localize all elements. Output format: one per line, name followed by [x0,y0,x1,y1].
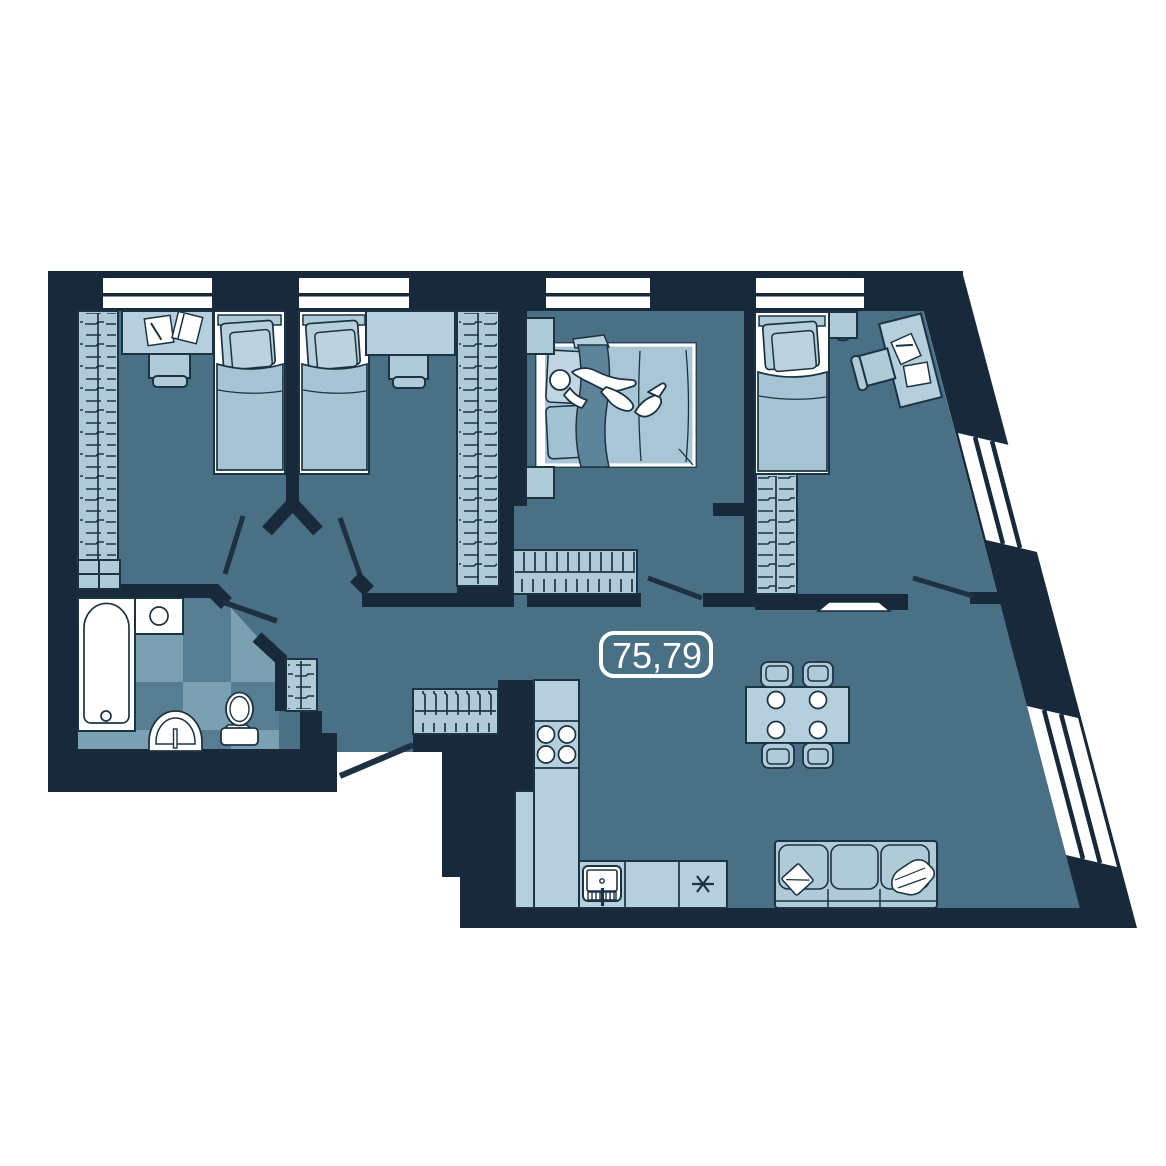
svg-text:75,79: 75,79 [612,635,702,676]
